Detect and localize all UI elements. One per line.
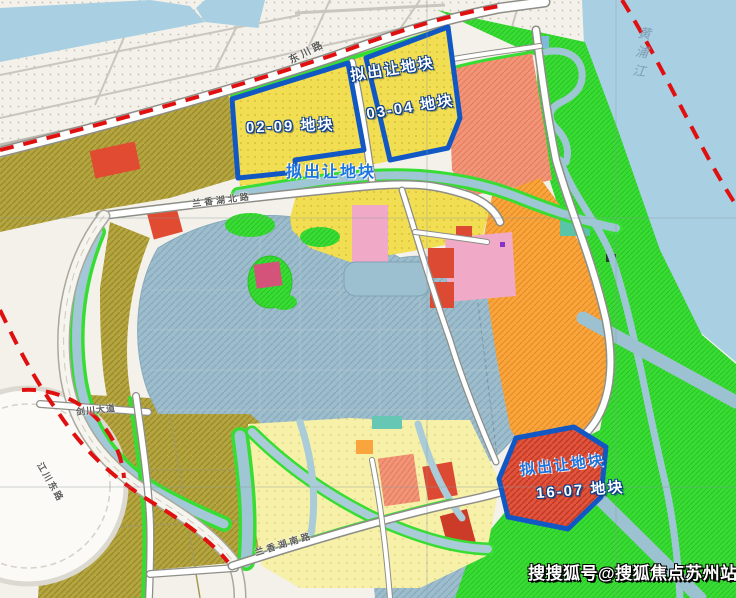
map-canvas[interactable]: 东川路 拟出让地块 03-04 地块 02-09 地块 拟出让地块 兰香湖北路 … — [0, 0, 736, 598]
